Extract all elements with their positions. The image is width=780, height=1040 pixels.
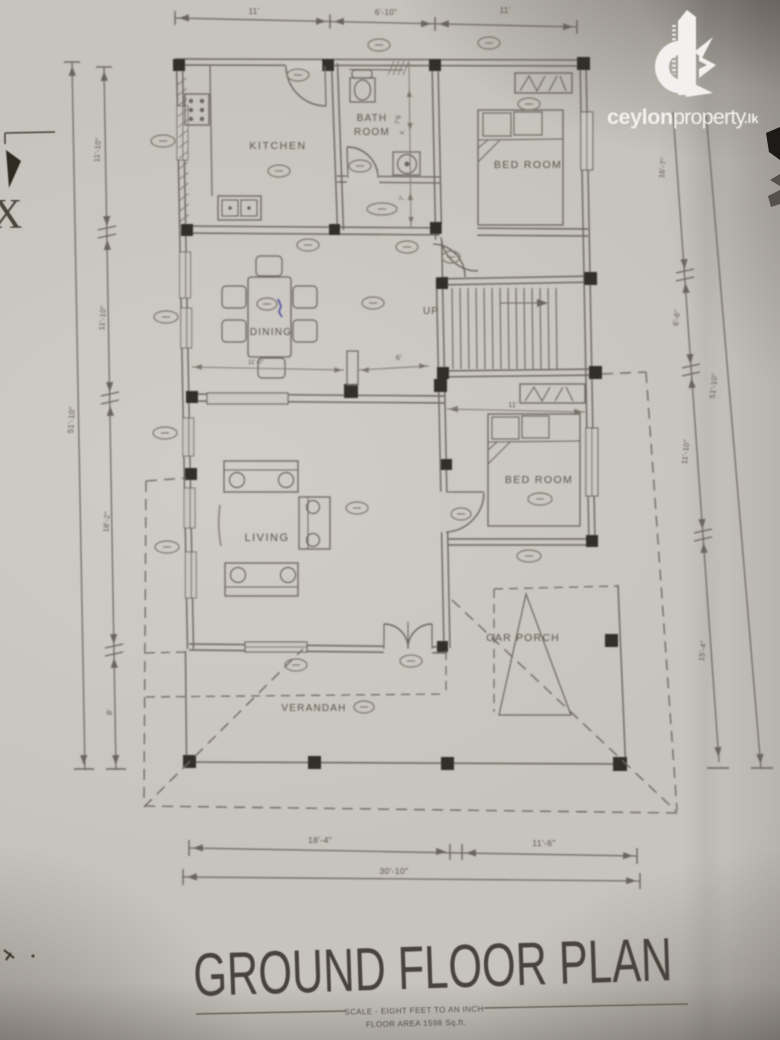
svg-text:11'-0": 11'-0" bbox=[248, 360, 264, 366]
svg-text:UP: UP bbox=[423, 306, 439, 317]
svg-text:6': 6' bbox=[396, 353, 402, 362]
svg-text:18'-4": 18'-4" bbox=[308, 835, 332, 845]
svg-text:BATH: BATH bbox=[357, 113, 388, 124]
svg-text:11'-6": 11'-6" bbox=[532, 838, 555, 848]
svg-text:X: X bbox=[0, 192, 22, 238]
svg-text:11'-10": 11'-10" bbox=[92, 137, 103, 162]
svg-text:11': 11' bbox=[500, 6, 511, 15]
svg-text:8': 8' bbox=[105, 708, 114, 715]
svg-text:GROUND FLOOR PLAN: GROUND FLOOR PLAN bbox=[192, 925, 673, 1009]
svg-text:11': 11' bbox=[249, 7, 260, 16]
svg-text:LIVING: LIVING bbox=[244, 532, 289, 544]
svg-text:51'-10": 51'-10" bbox=[66, 406, 77, 433]
svg-text:16'-7": 16'-7" bbox=[657, 157, 668, 179]
svg-text:15'-4": 15'-4" bbox=[697, 640, 708, 662]
svg-text:11'-10": 11'-10" bbox=[97, 305, 108, 330]
svg-text:51'-10": 51'-10" bbox=[708, 373, 720, 399]
svg-text:.lk: .lk bbox=[744, 111, 759, 126]
svg-text:11': 11' bbox=[508, 402, 518, 409]
svg-text:FLOOR AREA 1598 Sq.ft.: FLOOR AREA 1598 Sq.ft. bbox=[366, 1018, 467, 1029]
svg-text:KITCHEN: KITCHEN bbox=[249, 140, 306, 152]
svg-text:30'-10": 30'-10" bbox=[379, 866, 408, 876]
svg-text:18'-2": 18'-2" bbox=[101, 511, 111, 533]
svg-text:SCALE - EIGHT FEET TO AN INCH: SCALE - EIGHT FEET TO AN INCH bbox=[344, 1004, 484, 1016]
svg-text:ceylon: ceylon bbox=[607, 105, 673, 129]
svg-text:11'-10": 11'-10" bbox=[680, 439, 692, 465]
svg-text:6'-6": 6'-6" bbox=[671, 309, 682, 326]
svg-text:DINING: DINING bbox=[250, 327, 292, 338]
svg-text:7': 7' bbox=[399, 195, 407, 201]
svg-text:9¸: 9¸ bbox=[400, 129, 407, 135]
svg-text:VERANDAH: VERANDAH bbox=[281, 703, 346, 714]
svg-text:7'6: 7'6 bbox=[394, 115, 402, 125]
svg-text:property: property bbox=[673, 105, 747, 129]
svg-text:ROOM: ROOM bbox=[354, 127, 390, 138]
svg-text:6'-10": 6'-10" bbox=[375, 8, 397, 17]
svg-text:BED ROOM: BED ROOM bbox=[505, 474, 573, 486]
svg-text:BED ROOM: BED ROOM bbox=[494, 159, 562, 171]
